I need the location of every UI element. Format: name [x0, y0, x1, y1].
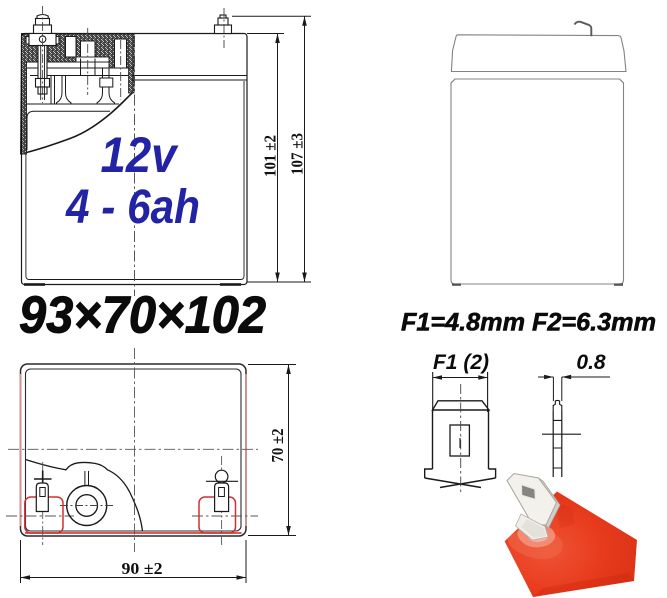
svg-text:0.8: 0.8	[576, 351, 606, 374]
svg-text:101 ±2: 101 ±2	[261, 135, 280, 177]
svg-text:70 ±2: 70 ±2	[268, 429, 287, 463]
svg-text:107 ±3: 107 ±3	[288, 133, 307, 175]
svg-text:90 ±2: 90 ±2	[122, 559, 163, 578]
svg-text:F1 (2): F1 (2)	[433, 351, 489, 374]
svg-text:93×70×102: 93×70×102	[19, 287, 266, 345]
svg-text:12v: 12v	[101, 127, 180, 183]
svg-text:4 - 6ah: 4 - 6ah	[65, 181, 200, 234]
svg-text:F1=4.8mm F2=6.3mm: F1=4.8mm F2=6.3mm	[401, 309, 656, 337]
